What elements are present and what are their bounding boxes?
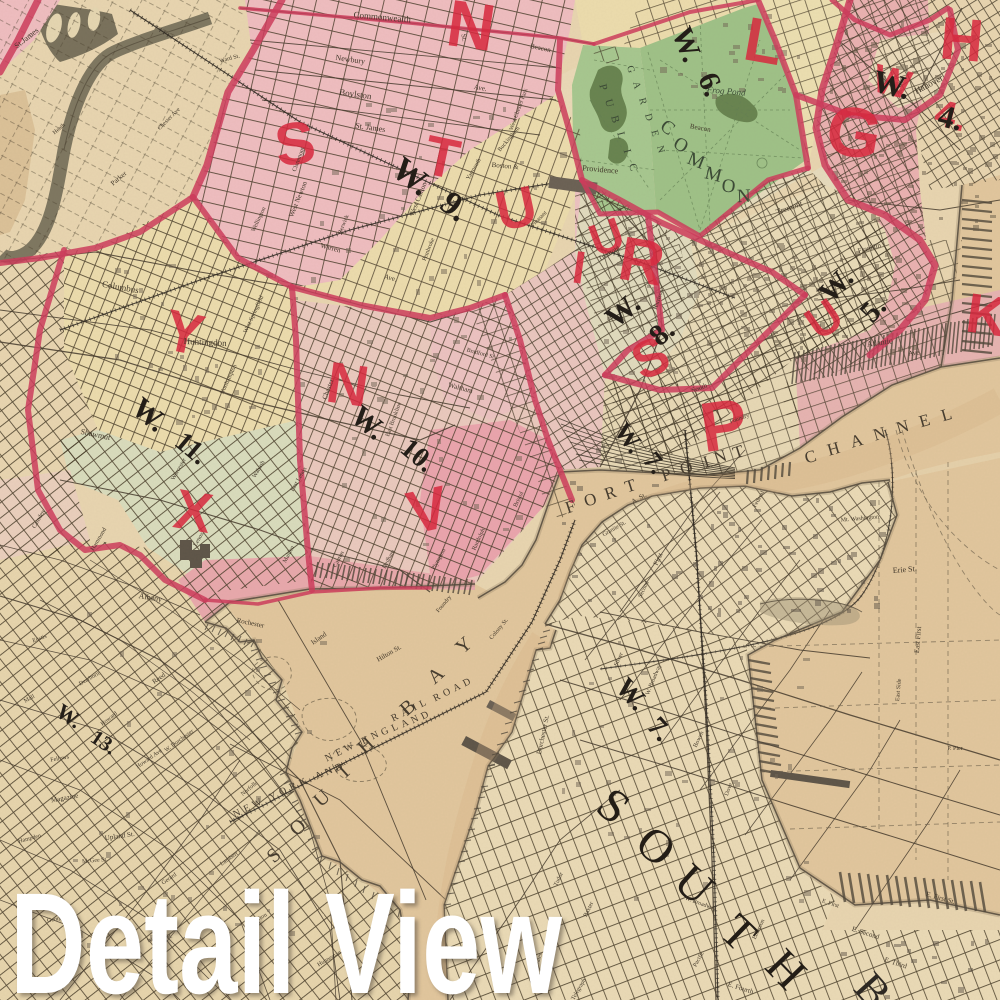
svg-text:H: H (937, 4, 986, 75)
svg-text:Detail View: Detail View (10, 863, 563, 1000)
svg-text:O: O (721, 175, 737, 197)
svg-text:P. Pier: P. Pier (947, 746, 962, 752)
svg-text:N: N (737, 186, 752, 207)
